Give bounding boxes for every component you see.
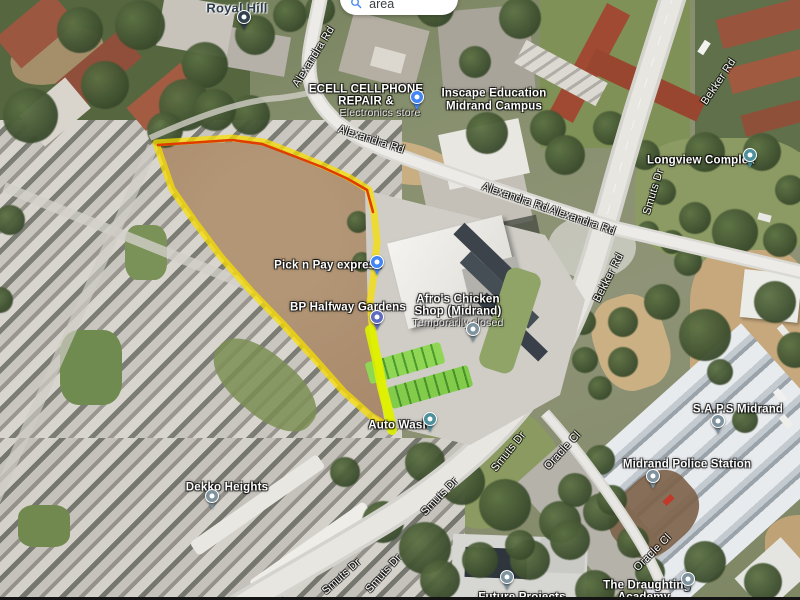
pick-n-pay-label[interactable]: Pick n Pay express <box>274 260 382 272</box>
smuts-dr-e-label: Smuts Dr <box>364 553 404 596</box>
midrand-police-station-label[interactable]: Midrand Police Station <box>623 459 751 471</box>
oracle-cl-b-label: Oracle Cl <box>632 532 673 573</box>
bekker-rd-a-label: Bekker Rd <box>700 57 739 107</box>
bp-halfway-label[interactable]: BP Halfway Gardens <box>290 302 406 314</box>
longview-complex-label[interactable]: Longview Complex <box>647 155 755 167</box>
smuts-dr-c-label: Smuts Dr <box>420 476 461 518</box>
afros-name-1-label[interactable]: Afro's Chicken <box>416 294 500 306</box>
school-pin-icon[interactable] <box>680 572 696 594</box>
oracle-cl-a-label: Oracle Cl <box>543 430 584 472</box>
car-wash-pin-icon[interactable] <box>422 412 438 434</box>
search-this-area-button[interactable]: Search this area <box>340 0 458 15</box>
search-button-label: Search this area <box>369 0 448 11</box>
saps-midrand-label[interactable]: S.A.P.S Midrand <box>693 404 783 416</box>
police-pin-icon[interactable] <box>710 414 726 436</box>
satellite-map[interactable]: Royal HillAlexandra RdECELL CELLPHONEREP… <box>0 0 800 600</box>
place-pin-icon[interactable] <box>499 570 515 592</box>
smuts-dr-d-label: Smuts Dr <box>321 557 364 597</box>
place-pin-icon[interactable] <box>204 489 220 511</box>
bekker-rd-b-label: Bekker Rd <box>592 252 626 304</box>
alexandra-rd-a-label: Alexandra Rd <box>291 25 337 89</box>
grocery-cart-pin-icon[interactable] <box>369 255 385 277</box>
smuts-dr-b-label: Smuts Dr <box>490 430 528 474</box>
ecell-name-1-label[interactable]: ECELL CELLPHONE <box>309 84 424 96</box>
alexandra-rd-c-label: Alexandra Rd <box>481 182 550 215</box>
search-icon <box>350 0 362 10</box>
shopping-pin-icon[interactable] <box>409 90 425 112</box>
auto-wash-label[interactable]: Auto Wash <box>368 420 429 432</box>
afros-status-label: Temporarily closed <box>412 318 503 329</box>
smuts-dr-a-label: Smuts Dr <box>642 168 666 217</box>
draughting-name-1-label[interactable]: The Draughting <box>603 580 691 592</box>
complex-pin-icon[interactable] <box>742 148 758 170</box>
alexandra-rd-d-label: Alexandra Rd <box>548 205 617 238</box>
place-pin-icon[interactable] <box>236 10 252 32</box>
police-pin-icon[interactable] <box>645 469 661 491</box>
alexandra-rd-b-label: Alexandra Rd <box>336 124 405 156</box>
dekko-heights-label[interactable]: Dekko Heights <box>186 482 268 494</box>
inscape-name-1-label[interactable]: Inscape Education <box>441 88 546 100</box>
restaurant-pin-icon[interactable] <box>465 322 481 344</box>
labels-layer: Royal HillAlexandra RdECELL CELLPHONEREP… <box>0 0 800 600</box>
fuel-pin-icon[interactable] <box>369 310 385 332</box>
inscape-name-2-label[interactable]: Midrand Campus <box>446 101 542 113</box>
